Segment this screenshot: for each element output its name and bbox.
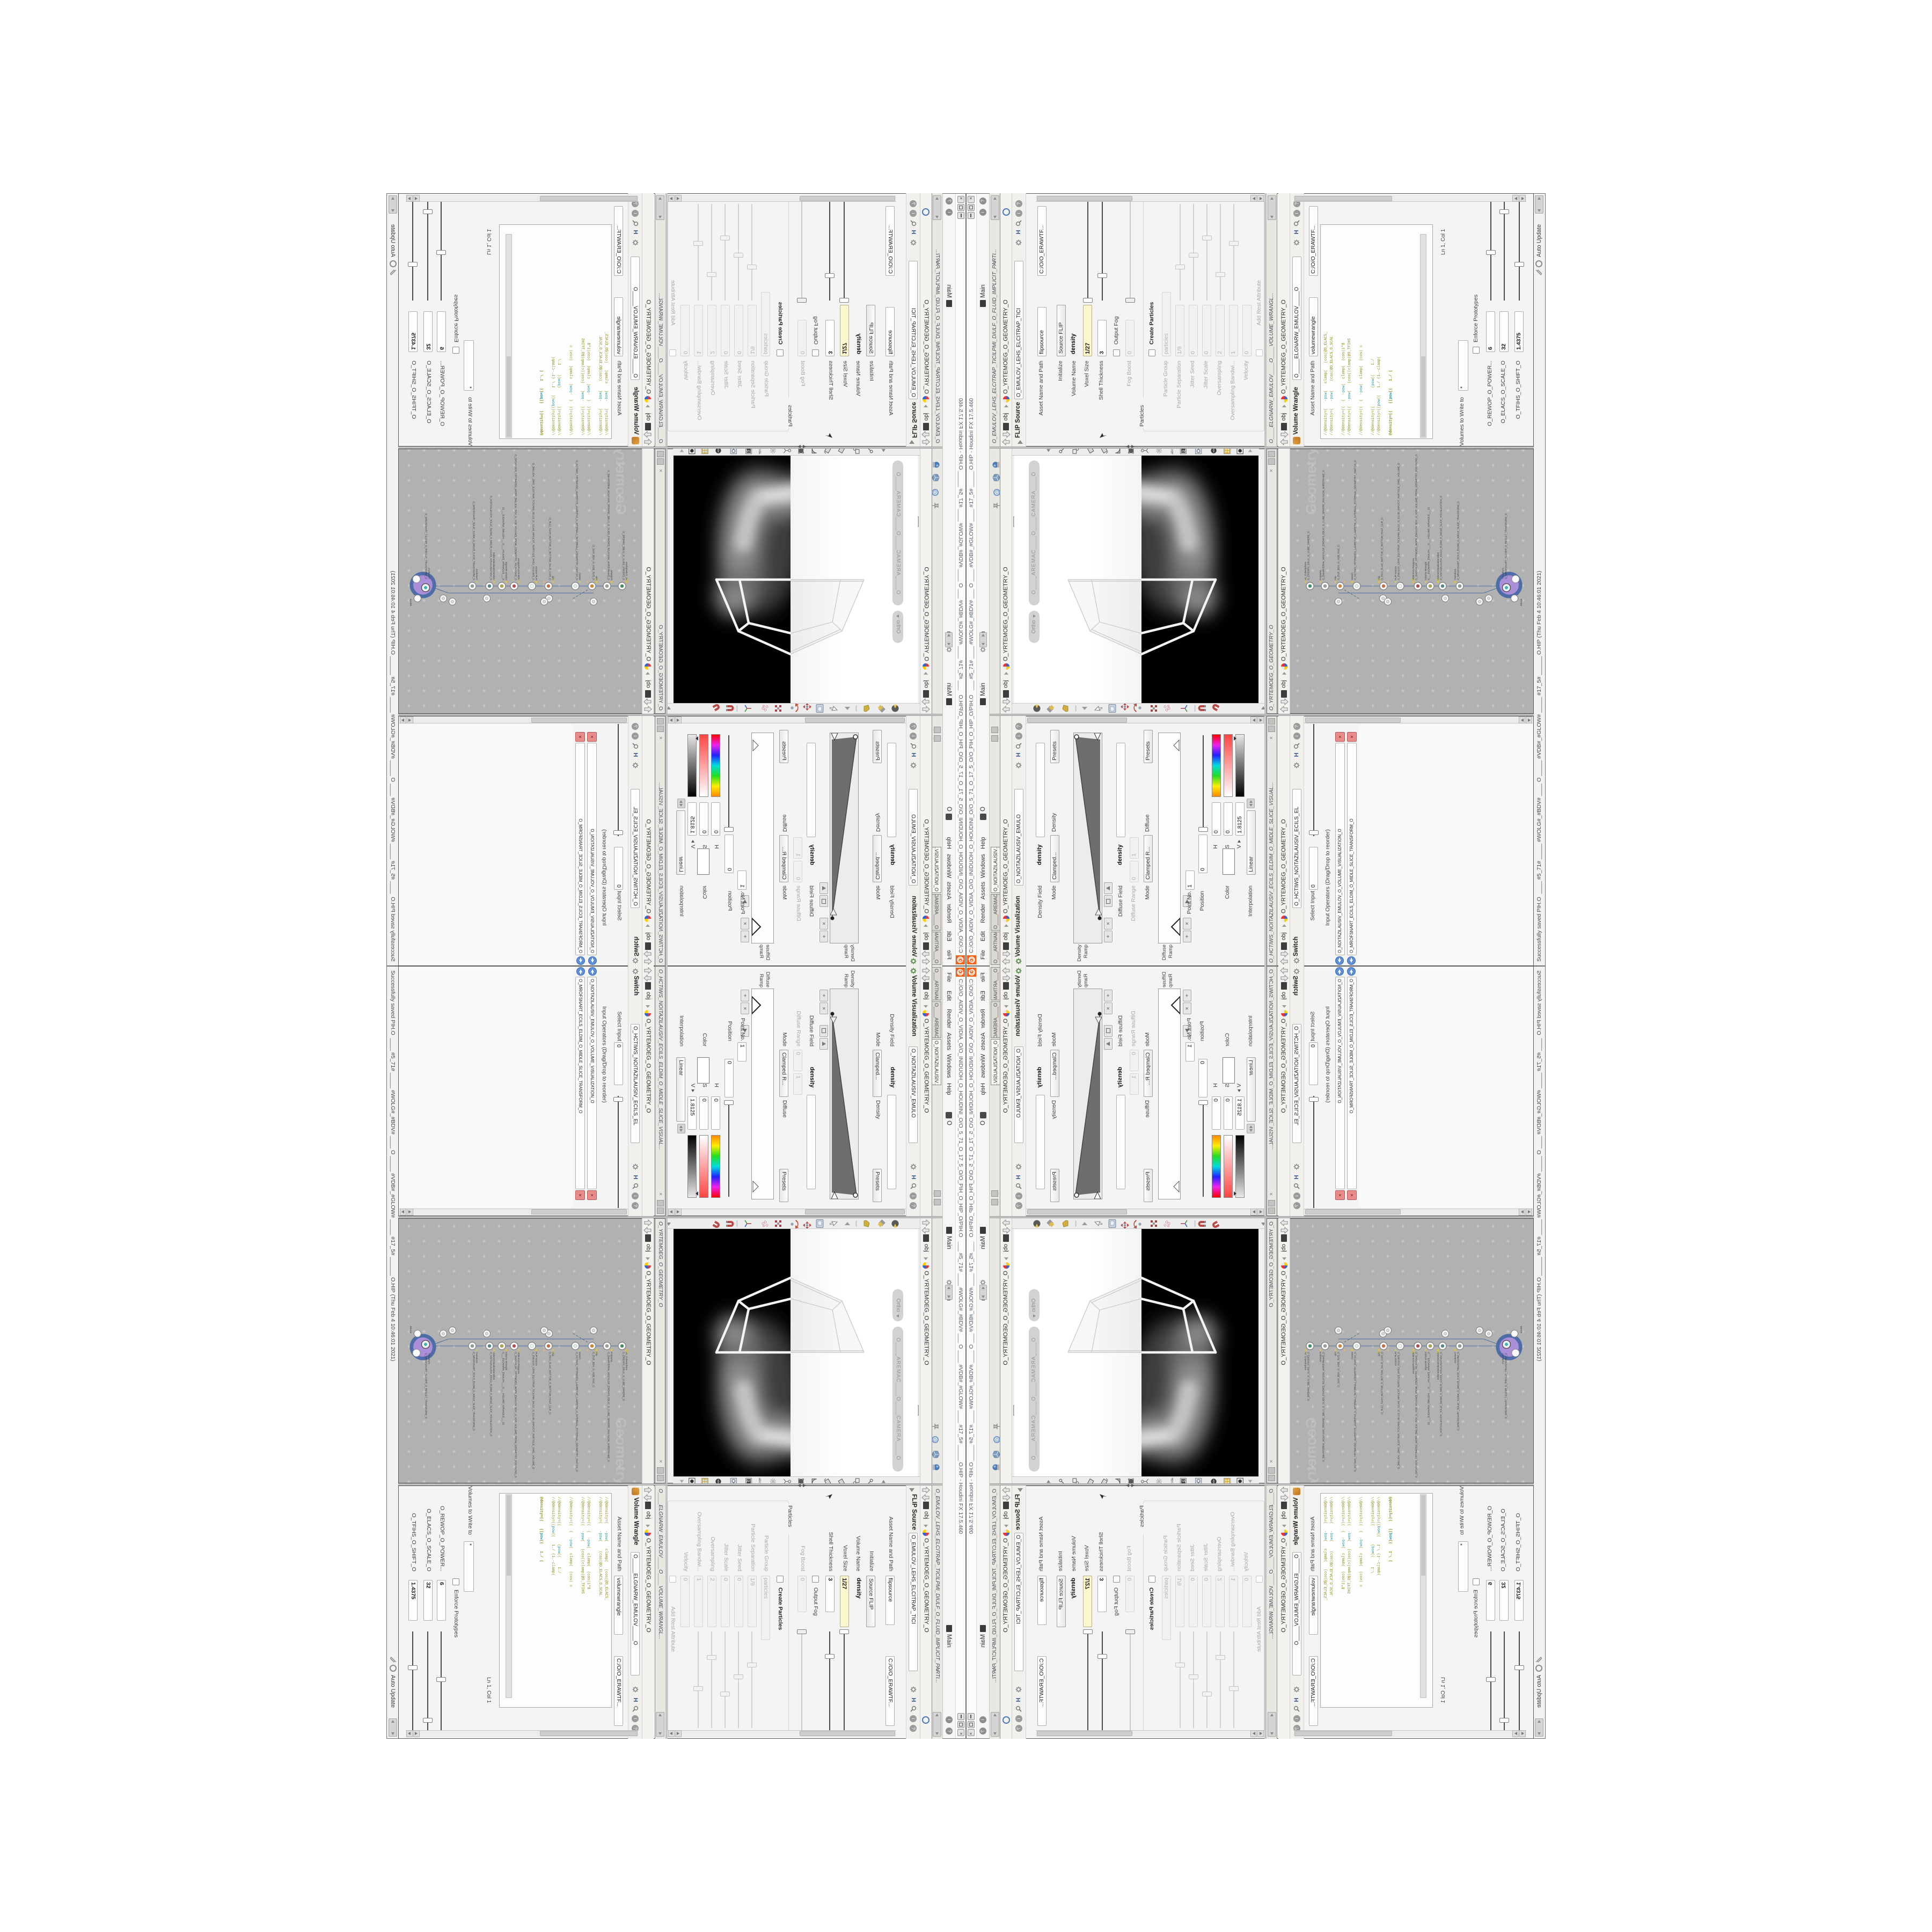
- svg-text:Volume Wrangle: Volume Wrangle: [505, 1352, 508, 1371]
- svg-text:Geometry: Geometry: [1303, 1417, 1319, 1483]
- svg-text:O_MROFSNART_ECILS_ELDIM_O_MIDL: O_MROFSNART_ECILS_ELDIM_O_MIDLE_SLICE_TR…: [473, 501, 475, 580]
- svg-text:Switch: Switch: [579, 573, 581, 580]
- svg-text:O_NOITAZILAUSIV_ECILS_ELDIM_O_: O_NOITAZILAUSIV_ECILS_ELDIM_O_MIDLE_SLIC…: [490, 495, 493, 580]
- svg-text:Switch: Switch: [1351, 573, 1353, 580]
- svg-text:VDB from Polygons: VDB from Polygons: [1412, 558, 1415, 580]
- svg-text:O___ELGNARW_EMULOV___O___VOLUM: O___ELGNARW_EMULOV___O___VOLUME_WRANGLE_…: [502, 507, 505, 580]
- svg-text:Geometry: Geometry: [613, 1417, 629, 1483]
- svg-text:Clip: Clip: [552, 1352, 554, 1356]
- svg-text:O_EREHPS_EBUC_O_CUBE_SPHERE_O: O_EREHPS_EBUC_O_CUBE_SPHERE_O: [623, 1352, 625, 1401]
- svg-text:O_HCTIWS_YRTEMOEG_LANRETXE_LAN: O_HCTIWS_YRTEMOEG_LANRETXE_LANRETNI_O_IN…: [1354, 460, 1357, 580]
- svg-text:abc: abc: [1170, 449, 1174, 454]
- svg-text:VDB from Polygons: VDB from Polygons: [1412, 1352, 1415, 1374]
- svg-text:O_PILC_FLAH_MOTTOB_O_BOTTOM_HA: O_PILC_FLAH_MOTTOB_O_BOTTOM_HALF_CLIP_O: [549, 517, 552, 580]
- svg-text:Volume Wrangle: Volume Wrangle: [1424, 1352, 1427, 1371]
- svg-text:VolumeVisualizationSlice: VolumeVisualizationSlice: [493, 552, 495, 580]
- svg-text:O_PILC_FLAH_MOTTOB_O_BOTTOM_HA: O_PILC_FLAH_MOTTOB_O_BOTTOM_HALF_CLIP_O: [549, 1352, 552, 1415]
- svg-text:Clip: Clip: [1378, 576, 1380, 580]
- svg-text:VolumeVisualizationSlice: VolumeVisualizationSlice: [493, 1352, 495, 1380]
- svg-text:O_HCTIWS_YRTEMOEG_LANRETXE_LAN: O_HCTIWS_YRTEMOEG_LANRETXE_LANRETNI_O_IN…: [1354, 1352, 1357, 1472]
- svg-text:O_EMULOV_LEHS_ELCITRAP_TICILPM: O_EMULOV_LEHS_ELCITRAP_TICILPMI_DIULF_O_…: [1397, 463, 1400, 580]
- svg-text:O_PILC_FLAH_MOTTOB_O_BOTTOM_HA: O_PILC_FLAH_MOTTOB_O_BOTTOM_HALF_CLIP_O: [1381, 517, 1384, 580]
- svg-text:Volume Wrangle: Volume Wrangle: [505, 561, 508, 580]
- svg-text:Switch: Switch: [579, 1352, 581, 1359]
- svg-text:O_SNOGYLOP_YRTEMOEG_MORF_EMULO: O_SNOGYLOP_YRTEMOEG_MORF_EMULOV_BDV_O_VD…: [1415, 454, 1418, 580]
- svg-text:O_ELIF_BDV_O_VDB_FILE_O: O_ELIF_BDV_O_VDB_FILE_O: [592, 1352, 595, 1387]
- svg-text:an_CubeSphere: an_CubeSphere: [1304, 561, 1307, 580]
- svg-text:O___ELGNARW_EMULOV___O___VOLUM: O___ELGNARW_EMULOV___O___VOLUME_WRANGLE_…: [502, 1352, 505, 1425]
- svg-text:Merge: Merge: [409, 1326, 412, 1334]
- svg-text:O_EMARFERIW_NOGYLOP_EREHPS_EBU: O_EMARFERIW_NOGYLOP_EREHPS_EBUC_O_CUBE_S…: [1322, 1352, 1325, 1462]
- svg-text:O_MROFSNART_TLUSER_O_RESULT_TR: O_MROFSNART_TLUSER_O_RESULT_TRANSFORM_O: [425, 513, 428, 579]
- svg-text:File: File: [595, 1352, 598, 1356]
- svg-text:Switch: Switch: [1351, 1352, 1353, 1359]
- svg-text:File: File: [1334, 576, 1337, 580]
- svg-text:an_CubeSphere: an_CubeSphere: [625, 561, 628, 580]
- svg-text:VolumeVisualizationSlice: VolumeVisualizationSlice: [1437, 1352, 1439, 1380]
- svg-text:O_MROFSNART_ECILS_ELDIM_O_MIDL: O_MROFSNART_ECILS_ELDIM_O_MIDLE_SLICE_TR…: [1457, 501, 1460, 580]
- svg-text:Transform: Transform: [428, 1353, 430, 1364]
- svg-text:O_MROFSNART_TLUSER_O_RESULT_TR: O_MROFSNART_TLUSER_O_RESULT_TRANSFORM_O: [425, 1353, 428, 1419]
- svg-text:PolyWire: PolyWire: [1319, 570, 1322, 580]
- svg-text:an_CubeSphere: an_CubeSphere: [1304, 1352, 1307, 1371]
- svg-text:O_EREHPS_EBUC_O_CUBE_SPHERE_O: O_EREHPS_EBUC_O_CUBE_SPHERE_O: [1307, 1352, 1310, 1401]
- svg-text:O_ELIF_BDV_O_VDB_FILE_O: O_ELIF_BDV_O_VDB_FILE_O: [1337, 545, 1340, 580]
- svg-text:O_EMULOV_LEHS_ELCITRAP_TICILPM: O_EMULOV_LEHS_ELCITRAP_TICILPMI_DIULF_O_…: [532, 463, 535, 580]
- svg-text:Merge: Merge: [409, 598, 412, 606]
- svg-text:O_MROFSNART_ECILS_ELDIM_O_MIDL: O_MROFSNART_ECILS_ELDIM_O_MIDLE_SLICE_TR…: [1457, 1352, 1460, 1431]
- svg-text:O_SNOGYLOP_YRTEMOEG_MORF_EMULO: O_SNOGYLOP_YRTEMOEG_MORF_EMULOV_BDV_O_VD…: [1415, 1352, 1418, 1478]
- svg-text:O_EMARFERIW_NOGYLOP_EREHPS_EBU: O_EMARFERIW_NOGYLOP_EREHPS_EBUC_O_CUBE_S…: [1322, 470, 1325, 580]
- svg-text:PolyWire: PolyWire: [610, 570, 613, 580]
- svg-text:Clip: Clip: [552, 576, 554, 580]
- svg-text:VDB from Polygons: VDB from Polygons: [517, 558, 520, 580]
- svg-text:abc: abc: [758, 1478, 762, 1483]
- svg-text:PolyWire: PolyWire: [610, 1352, 613, 1362]
- svg-text:Merge: Merge: [1520, 1326, 1523, 1334]
- svg-text:O_HCTIWS_YRTEMOEG_LANRETXE_LAN: O_HCTIWS_YRTEMOEG_LANRETXE_LANRETNI_O_IN…: [576, 1352, 579, 1472]
- svg-text:Merge: Merge: [1520, 598, 1523, 606]
- svg-text:FLIP Source: FLIP Source: [1394, 1352, 1397, 1366]
- svg-text:O_EMARFERIW_NOGYLOP_EREHPS_EBU: O_EMARFERIW_NOGYLOP_EREHPS_EBUC_O_CUBE_S…: [608, 470, 610, 580]
- svg-text:Transform: Transform: [475, 1352, 478, 1363]
- svg-text:O_ELIF_BDV_O_VDB_FILE_O: O_ELIF_BDV_O_VDB_FILE_O: [592, 545, 595, 580]
- svg-text:FLIP Source: FLIP Source: [1394, 566, 1397, 580]
- svg-text:PolyWire: PolyWire: [1319, 1352, 1322, 1362]
- svg-text:Transform: Transform: [1502, 568, 1504, 579]
- svg-text:O_SNOGYLOP_YRTEMOEG_MORF_EMULO: O_SNOGYLOP_YRTEMOEG_MORF_EMULOV_BDV_O_VD…: [515, 454, 517, 580]
- svg-text:FLIP Source: FLIP Source: [535, 1352, 538, 1366]
- svg-text:Transform: Transform: [428, 568, 430, 579]
- svg-text:Transform: Transform: [475, 569, 478, 580]
- svg-text:O_MROFSNART_TLUSER_O_RESULT_TR: O_MROFSNART_TLUSER_O_RESULT_TRANSFORM_O: [1505, 513, 1507, 579]
- svg-text:O_NOITAZILAUSIV_ECILS_ELDIM_O_: O_NOITAZILAUSIV_ECILS_ELDIM_O_MIDLE_SLIC…: [1440, 495, 1443, 580]
- svg-text:Geometry: Geometry: [1303, 449, 1319, 515]
- svg-text:O_HCTIWS_YRTEMOEG_LANRETXE_LAN: O_HCTIWS_YRTEMOEG_LANRETXE_LANRETNI_O_IN…: [576, 460, 579, 580]
- svg-text:O_EREHPS_EBUC_O_CUBE_SPHERE_O: O_EREHPS_EBUC_O_CUBE_SPHERE_O: [1307, 531, 1310, 580]
- svg-text:File: File: [595, 576, 598, 580]
- svg-text:O_MROFSNART_TLUSER_O_RESULT_TR: O_MROFSNART_TLUSER_O_RESULT_TRANSFORM_O: [1505, 1353, 1507, 1419]
- svg-text:an_CubeSphere: an_CubeSphere: [625, 1352, 628, 1371]
- svg-text:O___ELGNARW_EMULOV___O___VOLUM: O___ELGNARW_EMULOV___O___VOLUME_WRANGLE_…: [1428, 1352, 1430, 1425]
- svg-text:abc: abc: [1170, 1478, 1174, 1483]
- svg-text:O_EMULOV_LEHS_ELCITRAP_TICILPM: O_EMULOV_LEHS_ELCITRAP_TICILPMI_DIULF_O_…: [532, 1352, 535, 1469]
- svg-text:Clip: Clip: [1378, 1352, 1380, 1356]
- svg-text:O_SNOGYLOP_YRTEMOEG_MORF_EMULO: O_SNOGYLOP_YRTEMOEG_MORF_EMULOV_BDV_O_VD…: [515, 1352, 517, 1478]
- svg-text:O_EREHPS_EBUC_O_CUBE_SPHERE_O: O_EREHPS_EBUC_O_CUBE_SPHERE_O: [623, 531, 625, 580]
- svg-text:Transform: Transform: [1502, 1353, 1504, 1364]
- svg-text:O_EMARFERIW_NOGYLOP_EREHPS_EBU: O_EMARFERIW_NOGYLOP_EREHPS_EBUC_O_CUBE_S…: [608, 1352, 610, 1462]
- svg-text:O___ELGNARW_EMULOV___O___VOLUM: O___ELGNARW_EMULOV___O___VOLUME_WRANGLE_…: [1428, 507, 1430, 580]
- svg-text:O_ELIF_BDV_O_VDB_FILE_O: O_ELIF_BDV_O_VDB_FILE_O: [1337, 1352, 1340, 1387]
- svg-text:O_PILC_FLAH_MOTTOB_O_BOTTOM_HA: O_PILC_FLAH_MOTTOB_O_BOTTOM_HALF_CLIP_O: [1381, 1352, 1384, 1415]
- svg-text:Transform: Transform: [1454, 569, 1457, 580]
- svg-text:FLIP Source: FLIP Source: [535, 566, 538, 580]
- svg-text:O_NOITAZILAUSIV_ECILS_ELDIM_O_: O_NOITAZILAUSIV_ECILS_ELDIM_O_MIDLE_SLIC…: [1440, 1352, 1443, 1437]
- svg-text:Volume Wrangle: Volume Wrangle: [1424, 561, 1427, 580]
- svg-text:Transform: Transform: [1454, 1352, 1457, 1363]
- svg-text:VDB from Polygons: VDB from Polygons: [517, 1352, 520, 1374]
- svg-text:O_NOITAZILAUSIV_ECILS_ELDIM_O_: O_NOITAZILAUSIV_ECILS_ELDIM_O_MIDLE_SLIC…: [490, 1352, 493, 1437]
- svg-text:Geometry: Geometry: [613, 449, 629, 515]
- svg-text:O_EMULOV_LEHS_ELCITRAP_TICILPM: O_EMULOV_LEHS_ELCITRAP_TICILPMI_DIULF_O_…: [1397, 1352, 1400, 1469]
- svg-text:abc: abc: [758, 449, 762, 454]
- svg-text:File: File: [1334, 1352, 1337, 1356]
- svg-text:O_MROFSNART_ECILS_ELDIM_O_MIDL: O_MROFSNART_ECILS_ELDIM_O_MIDLE_SLICE_TR…: [473, 1352, 475, 1431]
- svg-text:VolumeVisualizationSlice: VolumeVisualizationSlice: [1437, 552, 1439, 580]
